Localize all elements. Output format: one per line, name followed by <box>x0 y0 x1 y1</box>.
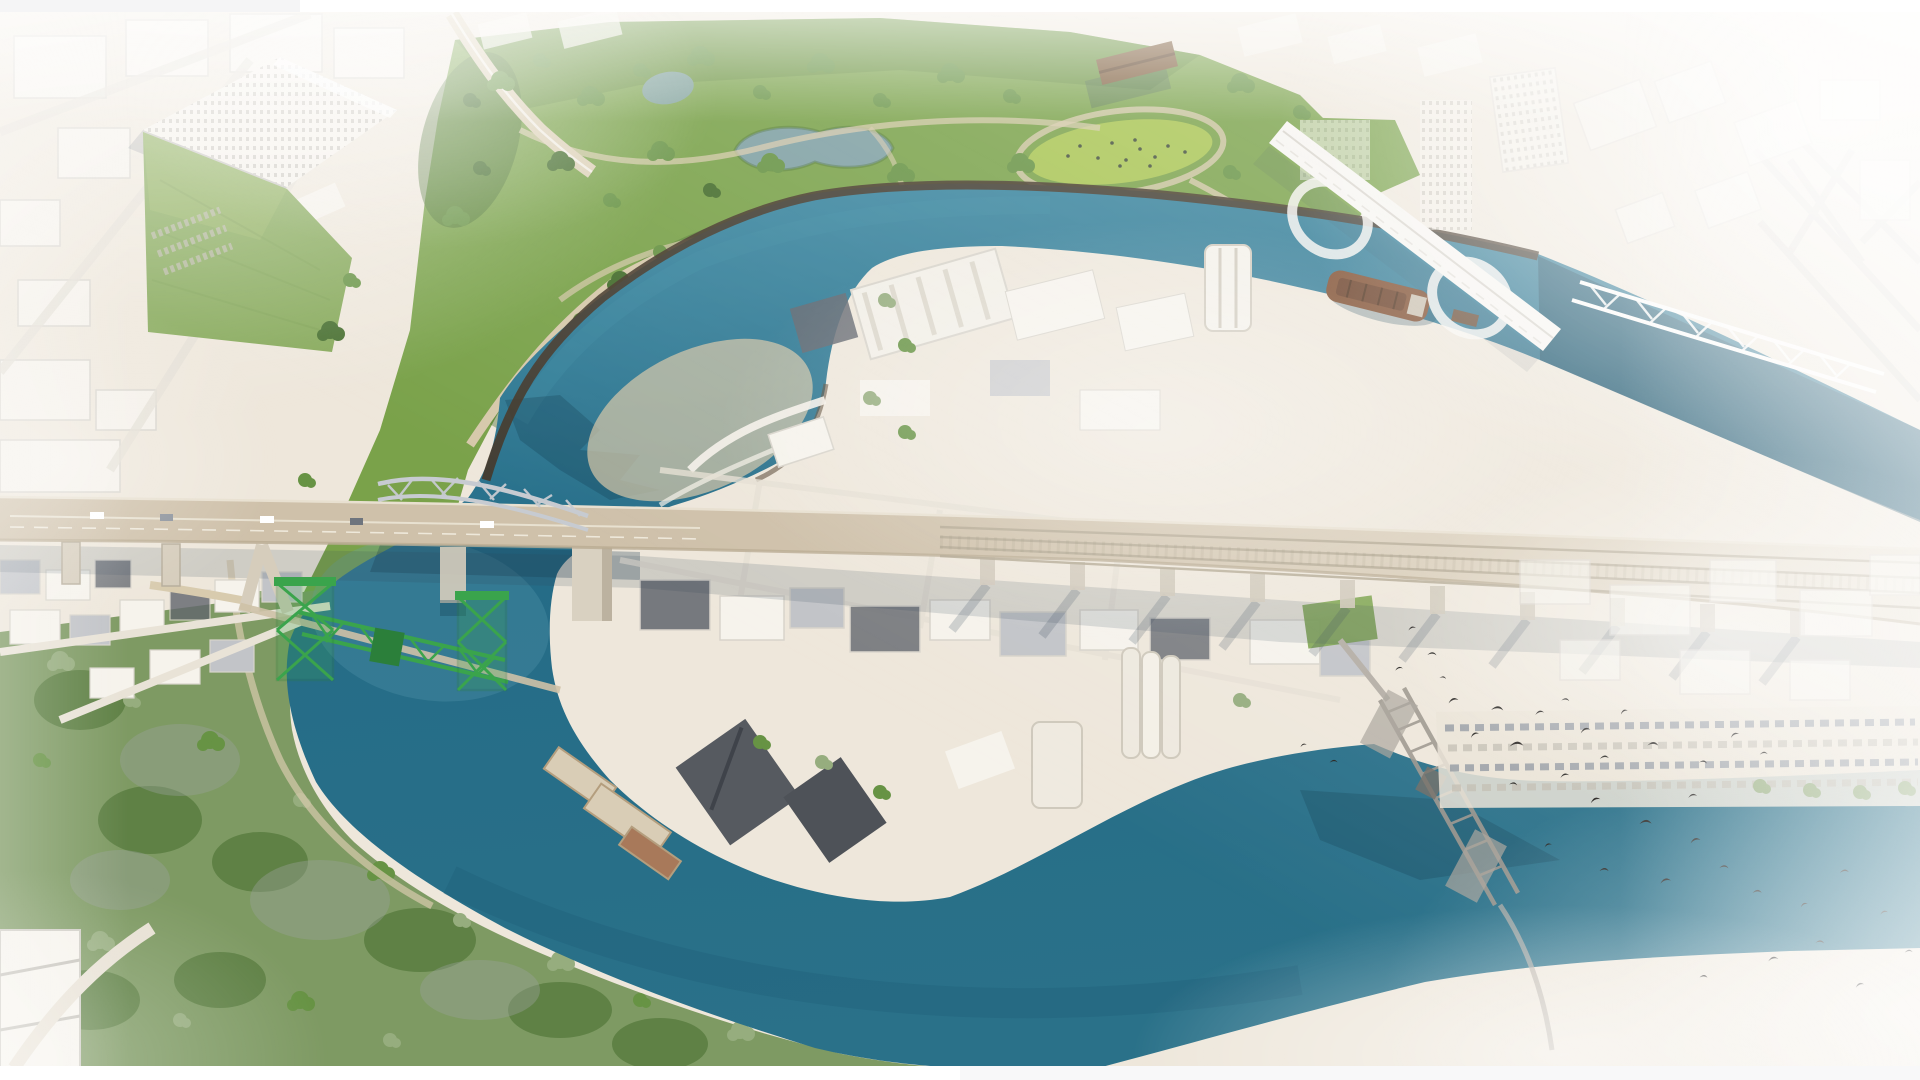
aerial-render-image <box>0 0 1920 1080</box>
haze-overlays <box>0 0 1920 1080</box>
bottom-band-tint <box>960 1066 1920 1080</box>
render-canvas <box>0 0 1920 1080</box>
top-band-tint <box>0 0 300 12</box>
